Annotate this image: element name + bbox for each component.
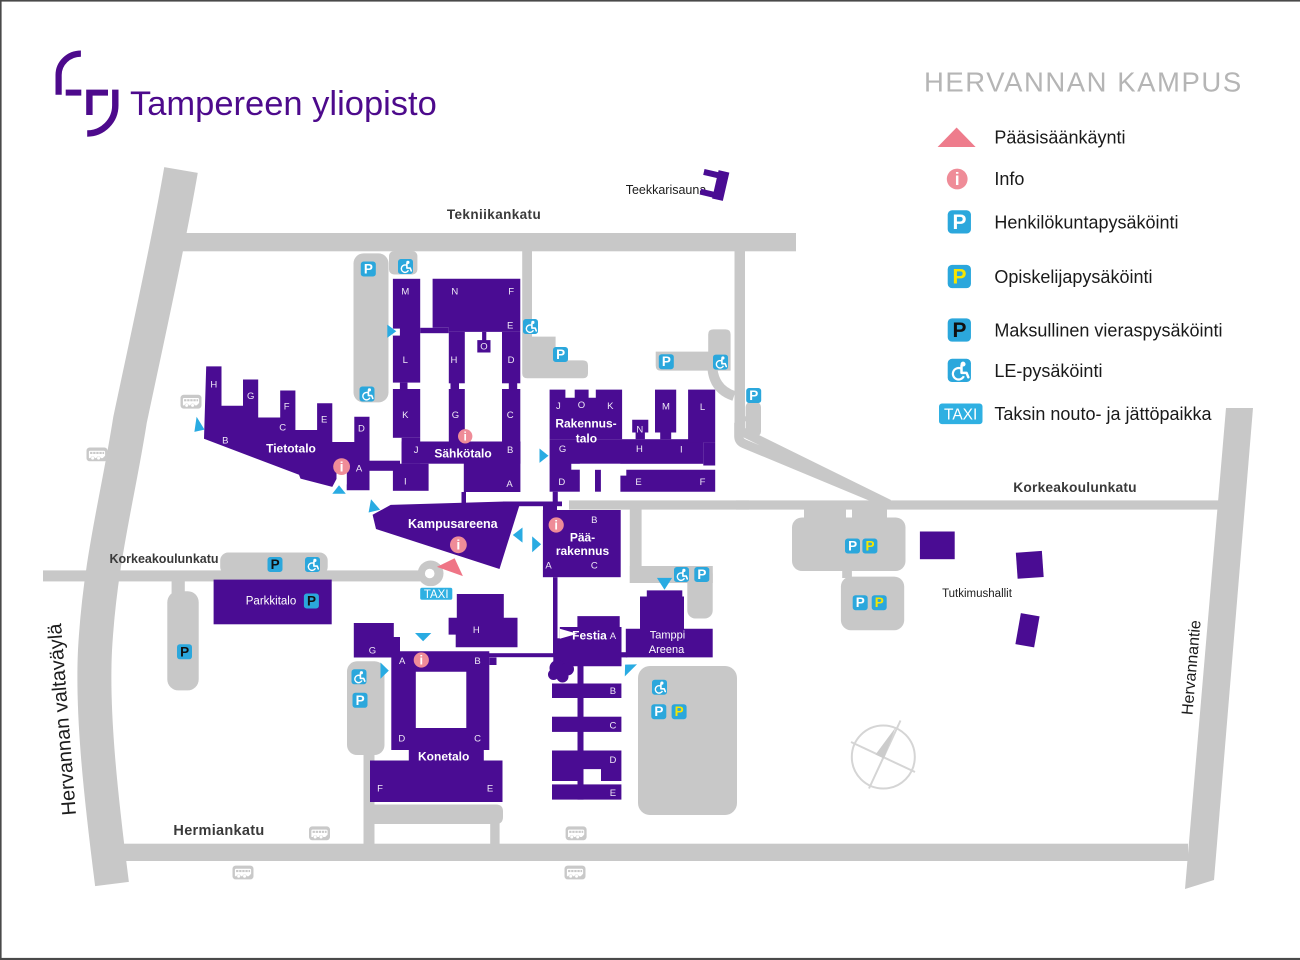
svg-text:G: G bbox=[559, 444, 566, 455]
svg-text:TAXI: TAXI bbox=[944, 407, 977, 424]
svg-text:F: F bbox=[377, 784, 383, 795]
svg-text:B: B bbox=[507, 445, 513, 456]
svg-text:TAXI: TAXI bbox=[424, 589, 449, 601]
svg-text:LE-pysäköinti: LE-pysäköinti bbox=[994, 361, 1102, 381]
svg-text:Tutkimushallit: Tutkimushallit bbox=[942, 588, 1013, 600]
svg-text:E: E bbox=[610, 788, 616, 799]
svg-text:J: J bbox=[414, 445, 419, 456]
svg-text:Maksullinen vieraspysäköinti: Maksullinen vieraspysäköinti bbox=[994, 320, 1222, 340]
svg-text:Taksin nouto- ja jättöpaikka: Taksin nouto- ja jättöpaikka bbox=[994, 404, 1212, 424]
svg-text:rakennus: rakennus bbox=[556, 544, 610, 558]
svg-text:Henkilökuntapysäköinti: Henkilökuntapysäköinti bbox=[994, 212, 1178, 232]
svg-text:I: I bbox=[404, 477, 407, 488]
svg-text:H: H bbox=[473, 625, 480, 636]
svg-text:A: A bbox=[610, 631, 617, 642]
svg-text:Kampusareena: Kampusareena bbox=[408, 517, 499, 531]
svg-text:B: B bbox=[610, 686, 616, 697]
svg-text:G: G bbox=[247, 391, 254, 402]
svg-text:Festia: Festia bbox=[572, 628, 607, 642]
svg-text:C: C bbox=[474, 734, 481, 745]
svg-text:F: F bbox=[700, 477, 706, 488]
svg-text:Tamppi: Tamppi bbox=[650, 629, 685, 641]
svg-text:N: N bbox=[636, 424, 643, 435]
svg-text:B: B bbox=[222, 435, 228, 446]
svg-text:Pää-: Pää- bbox=[570, 530, 595, 544]
svg-text:talo: talo bbox=[576, 431, 597, 445]
svg-text:B: B bbox=[474, 656, 480, 667]
svg-text:A: A bbox=[356, 464, 363, 475]
svg-text:C: C bbox=[609, 721, 616, 732]
svg-text:D: D bbox=[609, 755, 616, 766]
svg-text:G: G bbox=[369, 646, 376, 657]
svg-text:G: G bbox=[452, 410, 459, 421]
svg-text:C: C bbox=[507, 410, 514, 421]
svg-text:F: F bbox=[508, 286, 514, 297]
svg-text:H: H bbox=[210, 380, 217, 391]
svg-text:I: I bbox=[680, 444, 683, 455]
svg-text:M: M bbox=[401, 286, 409, 297]
svg-text:Info: Info bbox=[994, 169, 1024, 189]
svg-text:E: E bbox=[635, 477, 641, 488]
svg-text:K: K bbox=[607, 401, 614, 412]
svg-text:L: L bbox=[700, 402, 705, 413]
svg-text:Korkeakoulunkatu: Korkeakoulunkatu bbox=[109, 552, 218, 566]
svg-text:Tampereen yliopisto: Tampereen yliopisto bbox=[130, 85, 437, 123]
svg-text:D: D bbox=[358, 423, 365, 434]
svg-text:C: C bbox=[591, 560, 598, 571]
svg-text:Rakennus-: Rakennus- bbox=[555, 417, 616, 431]
svg-text:L: L bbox=[403, 355, 408, 366]
svg-text:Sähkötalo: Sähkötalo bbox=[434, 446, 491, 460]
svg-text:E: E bbox=[321, 415, 327, 426]
svg-text:Teekkarisauna: Teekkarisauna bbox=[626, 183, 707, 197]
svg-text:Hermiankatu: Hermiankatu bbox=[173, 823, 264, 839]
svg-text:E: E bbox=[507, 321, 513, 332]
svg-text:K: K bbox=[402, 410, 409, 421]
svg-text:N: N bbox=[451, 286, 458, 297]
svg-text:D: D bbox=[558, 477, 565, 488]
svg-text:Tietotalo: Tietotalo bbox=[266, 442, 316, 456]
svg-text:D: D bbox=[398, 734, 405, 745]
svg-text:D: D bbox=[508, 355, 515, 366]
svg-text:H: H bbox=[450, 355, 457, 366]
svg-text:A: A bbox=[399, 656, 406, 667]
svg-text:Konetalo: Konetalo bbox=[418, 750, 469, 764]
svg-text:H: H bbox=[636, 444, 643, 455]
svg-text:Areena: Areena bbox=[649, 644, 685, 656]
svg-text:Pääsisäänkäynti: Pääsisäänkäynti bbox=[994, 127, 1125, 147]
svg-text:C: C bbox=[279, 423, 286, 434]
svg-text:B: B bbox=[591, 515, 597, 526]
svg-text:F: F bbox=[284, 402, 290, 413]
svg-text:A: A bbox=[506, 479, 513, 490]
svg-text:O: O bbox=[578, 400, 585, 411]
svg-text:M: M bbox=[662, 401, 670, 412]
svg-text:HERVANNAN KAMPUS: HERVANNAN KAMPUS bbox=[924, 67, 1243, 98]
svg-text:Tekniikankatu: Tekniikankatu bbox=[447, 207, 541, 222]
svg-text:A: A bbox=[545, 560, 552, 571]
svg-text:O: O bbox=[480, 342, 487, 353]
svg-text:Korkeakoulunkatu: Korkeakoulunkatu bbox=[1013, 480, 1137, 495]
svg-text:J: J bbox=[556, 401, 561, 412]
svg-text:Parkkitalo: Parkkitalo bbox=[246, 595, 297, 607]
svg-text:E: E bbox=[487, 784, 493, 795]
svg-text:Opiskelijapysäköinti: Opiskelijapysäköinti bbox=[994, 267, 1152, 287]
